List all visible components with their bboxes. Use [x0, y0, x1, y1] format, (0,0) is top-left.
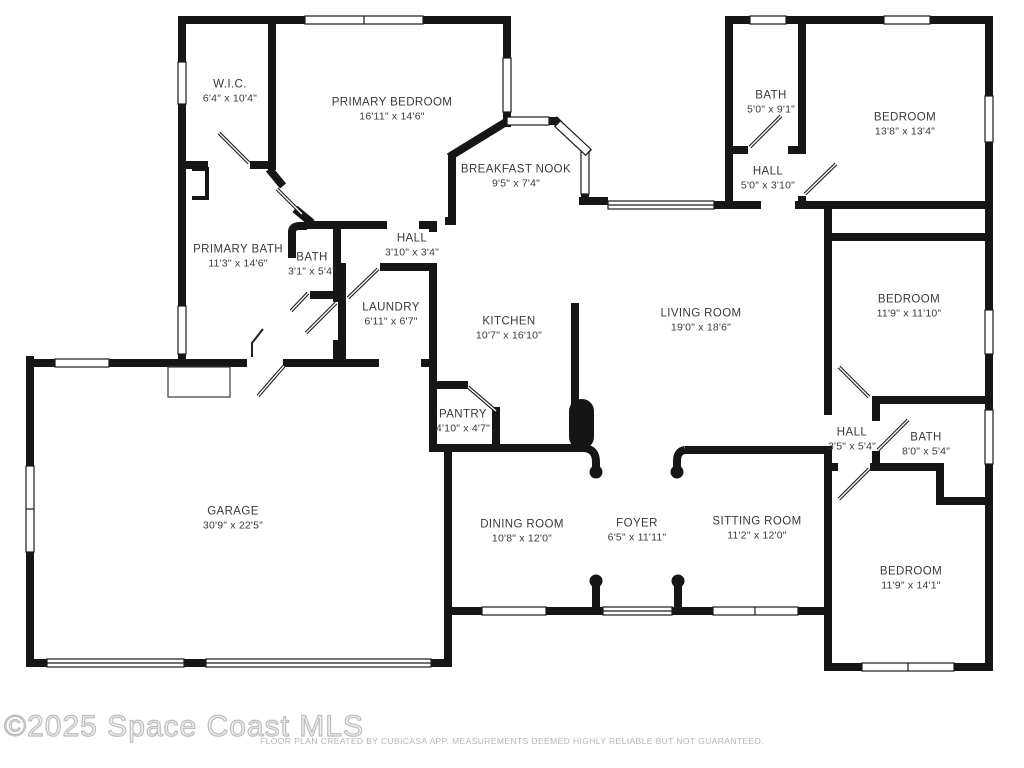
- bullnose-cap: [590, 466, 603, 479]
- floorplan-page: W.I.C.6'4" x 10'4"PRIMARY BEDROOM16'11" …: [0, 0, 1024, 768]
- bath-fixture: [252, 329, 263, 357]
- window: [884, 16, 930, 24]
- window: [713, 607, 798, 615]
- window: [55, 359, 109, 367]
- window: [26, 466, 34, 552]
- walls: [26, 16, 993, 671]
- window: [985, 410, 993, 464]
- garage-door: [206, 659, 431, 667]
- window: [985, 96, 993, 142]
- garage-door: [47, 659, 184, 667]
- fixtures: [168, 329, 685, 588]
- bullnose-cap: [590, 575, 603, 588]
- window: [178, 62, 186, 104]
- window: [482, 607, 546, 615]
- window: [555, 121, 591, 155]
- floorplan-drawing: [0, 0, 1024, 768]
- window: [178, 306, 186, 354]
- window: [862, 663, 954, 671]
- window: [985, 310, 993, 354]
- window: [305, 16, 423, 24]
- shower-stall: [192, 169, 209, 198]
- bullnose-cap: [671, 466, 684, 479]
- bullnose-cap: [672, 575, 685, 588]
- entry-door: [603, 607, 672, 615]
- window: [503, 58, 511, 112]
- window: [507, 117, 549, 125]
- kitchen-pier: [569, 399, 594, 449]
- window: [581, 152, 589, 194]
- door-leaves: [219, 116, 908, 499]
- utility-unit: [168, 367, 230, 397]
- disclaimer: FLOOR PLAN CREATED BY CUBICASA APP. MEAS…: [260, 736, 764, 746]
- sliding-door: [608, 201, 714, 209]
- window: [750, 16, 786, 24]
